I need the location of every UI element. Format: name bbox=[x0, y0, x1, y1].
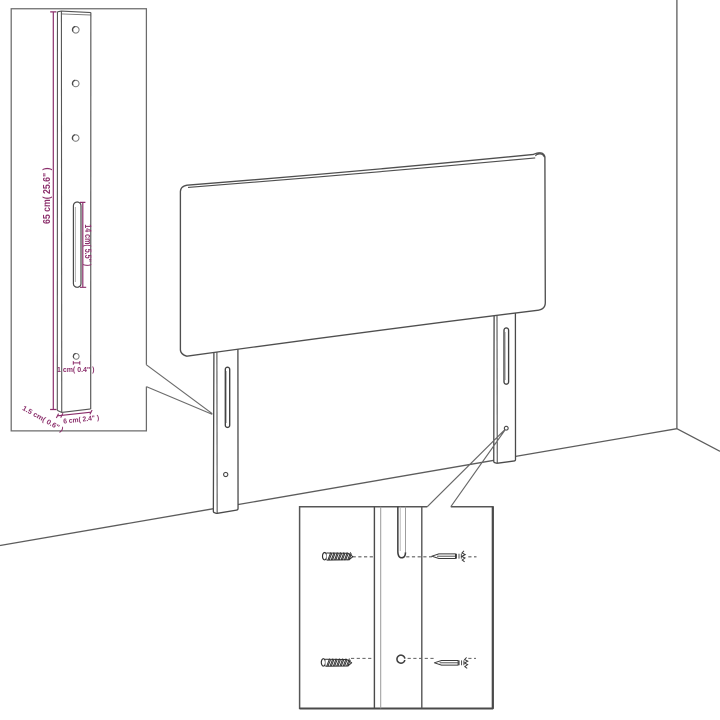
svg-text:14 cm( 5.5" ): 14 cm( 5.5" ) bbox=[82, 224, 93, 266]
svg-text:65 cm( 25.6" ): 65 cm( 25.6" ) bbox=[42, 168, 53, 225]
svg-text:1 cm( 0.4" ): 1 cm( 0.4" ) bbox=[57, 367, 95, 374]
